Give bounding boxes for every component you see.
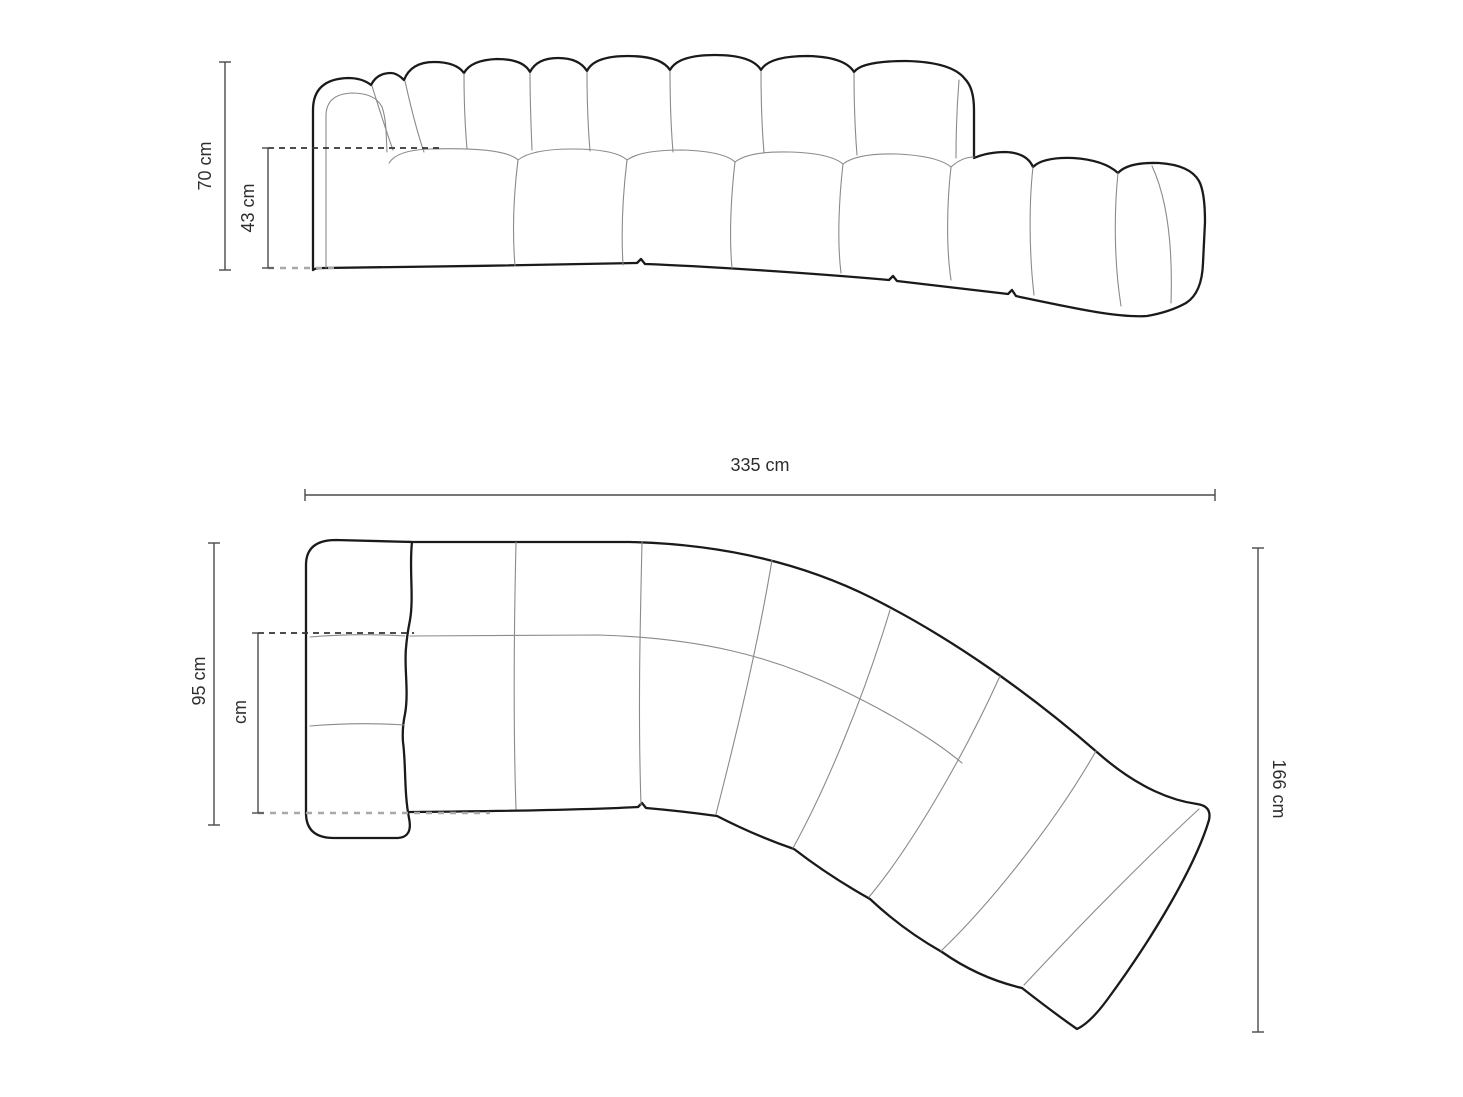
front-sofa-outline xyxy=(313,55,1205,316)
plan-view-drawing xyxy=(306,540,1210,1029)
diagram-svg: 70 cm 43 cm 335 cm xyxy=(0,0,1463,1097)
front-seat-height-dimension: 43 cm xyxy=(238,148,274,268)
front-height-dimension: 70 cm xyxy=(195,62,231,270)
plan-sofa-outline xyxy=(400,542,1210,1029)
partial-depth-label: cm xyxy=(230,700,250,724)
depth-label: 95 cm xyxy=(189,656,209,705)
depth-dimension: 95 cm xyxy=(189,543,220,825)
total-depth-label: 166 cm xyxy=(1269,759,1289,818)
sofa-dimension-diagram: 70 cm 43 cm 335 cm xyxy=(0,0,1463,1097)
width-dimension: 335 cm xyxy=(305,455,1215,501)
front-height-label: 70 cm xyxy=(195,141,215,190)
partial-depth-dimension: cm xyxy=(230,633,264,813)
front-seat-height-label: 43 cm xyxy=(238,183,258,232)
total-depth-dimension: 166 cm xyxy=(1252,548,1289,1032)
width-label: 335 cm xyxy=(730,455,789,475)
plan-armrest-outline xyxy=(306,540,412,838)
front-view-drawing xyxy=(313,55,1205,316)
